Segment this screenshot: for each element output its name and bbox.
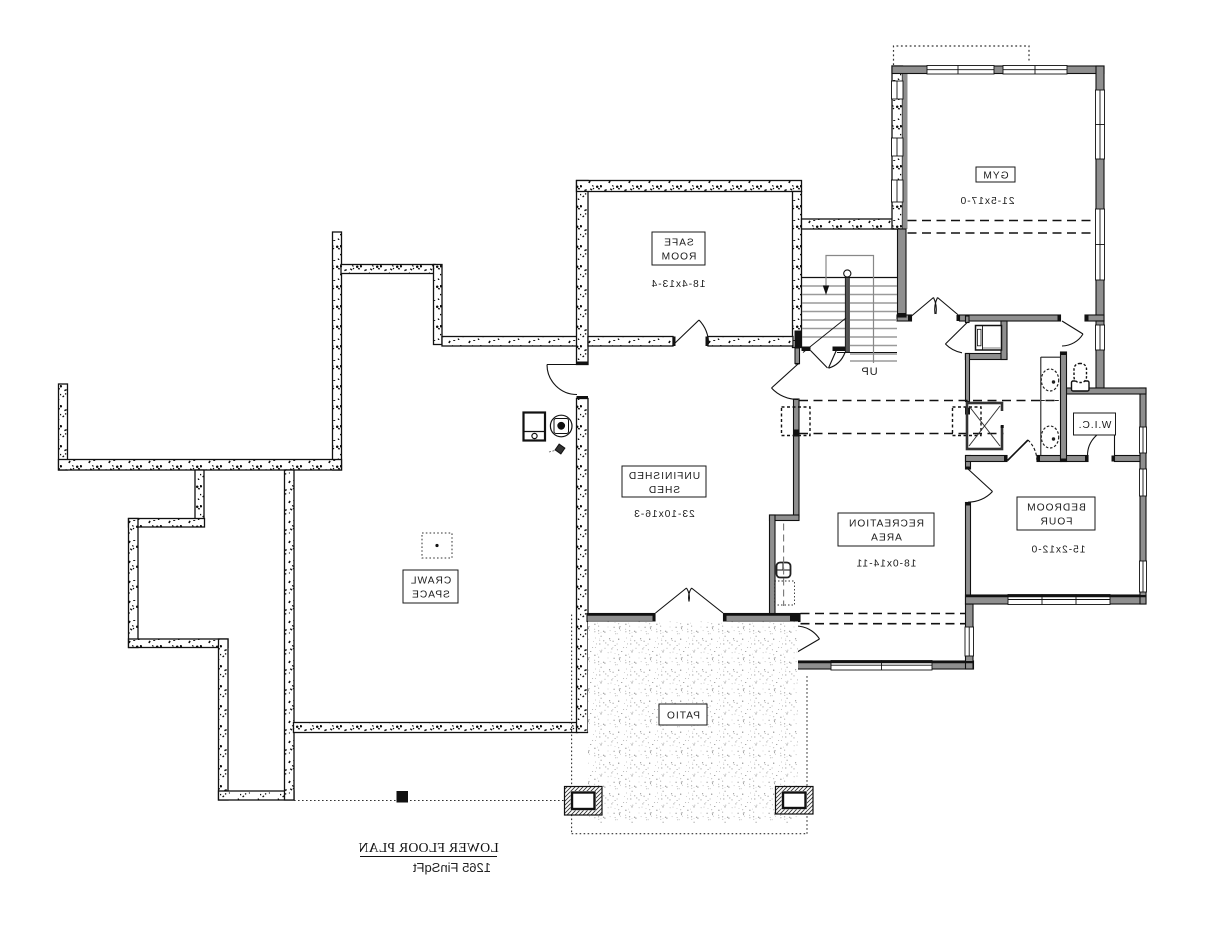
svg-text:SHED: SHED (648, 485, 680, 496)
svg-text:18-0x14-11: 18-0x14-11 (856, 559, 917, 570)
svg-text:W.I.C.: W.I.C. (1078, 420, 1112, 431)
svg-text:21-5x17-0: 21-5x17-0 (960, 196, 1015, 207)
svg-text:SPACE: SPACE (411, 590, 450, 601)
svg-text:CRAWL: CRAWL (410, 576, 451, 587)
svg-text:PATIO: PATIO (666, 711, 700, 722)
svg-text:SAFE: SAFE (663, 238, 694, 249)
svg-text:AREA: AREA (870, 533, 902, 544)
svg-text:18-4x13-4: 18-4x13-4 (651, 279, 706, 290)
svg-text:GYM: GYM (982, 171, 1008, 182)
svg-text:LOWER FLOOR PLAN: LOWER FLOOR PLAN (358, 840, 498, 855)
svg-text:23-10x16-3: 23-10x16-3 (633, 509, 695, 520)
svg-text:UNFINISHED: UNFINISHED (628, 471, 700, 482)
svg-text:1265 FinSqFt: 1265 FinSqFt (413, 860, 491, 875)
svg-text:15-2x12-0: 15-2x12-0 (1031, 545, 1086, 556)
svg-text:FOUR: FOUR (1040, 517, 1073, 528)
svg-text:UP: UP (860, 366, 877, 378)
svg-text:ROOM: ROOM (661, 252, 697, 263)
svg-text:BEDROOM: BEDROOM (1026, 503, 1086, 514)
svg-text:RECREATION: RECREATION (848, 519, 924, 530)
